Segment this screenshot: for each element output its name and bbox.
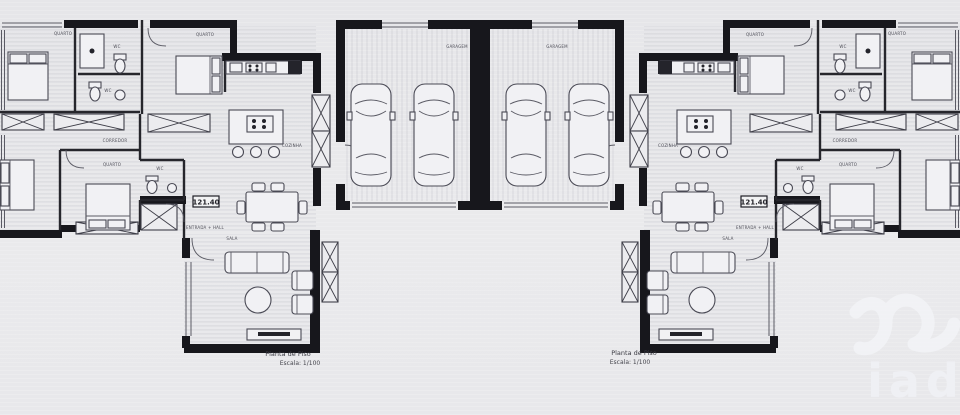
right-entrance-label: ENTRADA + HALL bbox=[736, 225, 775, 230]
right-caption-scale: Escala: 1/100 bbox=[610, 359, 651, 366]
right-wc2-label: WC bbox=[848, 88, 855, 93]
left-wc2-label: WC bbox=[104, 88, 111, 93]
left-bedroom2-label: QUARTO bbox=[196, 32, 214, 37]
left-caption-title: Planta de Piso bbox=[265, 350, 311, 358]
right-caption-title: Planta de Piso bbox=[611, 349, 657, 357]
left-kitchen-label: COZINHA bbox=[282, 143, 302, 148]
right-garage-label: GARAGEM bbox=[546, 44, 568, 49]
right-corridor-label: CORREDOR bbox=[833, 138, 858, 143]
left-entrance-label: ENTRADA + HALL bbox=[186, 225, 225, 230]
floor-plan-image: iad QUARTO QUARTO WC WC CORREDOR QUARTO … bbox=[0, 0, 960, 415]
left-bedroom3-label: QUARTO bbox=[103, 162, 121, 167]
left-unit-plan bbox=[0, 20, 338, 353]
left-garage-label: GARAGEM bbox=[446, 44, 468, 49]
right-living-label: SALA bbox=[722, 236, 733, 241]
right-kitchen-label: COZINHA bbox=[658, 143, 678, 148]
left-total-area: 121.40 bbox=[192, 199, 219, 207]
left-wc1-label: WC bbox=[113, 44, 120, 49]
left-caption-scale: Escala: 1/100 bbox=[280, 360, 321, 367]
right-bedroom3-label: QUARTO bbox=[839, 162, 857, 167]
right-wc1-label: WC bbox=[839, 44, 846, 49]
left-living-label: SALA bbox=[226, 236, 237, 241]
right-bedroom1-label: QUARTO bbox=[888, 31, 906, 36]
watermark: iad bbox=[856, 300, 960, 408]
right-total-area: 121.40 bbox=[740, 199, 767, 207]
floor-plan-svg: iad QUARTO QUARTO WC WC CORREDOR QUARTO … bbox=[0, 0, 960, 415]
left-bedroom1-label: QUARTO bbox=[54, 31, 72, 36]
iad-logo-text: iad bbox=[867, 354, 960, 408]
iad-logo-symbol bbox=[856, 300, 954, 349]
right-wc3-label: WC bbox=[796, 166, 803, 171]
left-wc3-label: WC bbox=[156, 166, 163, 171]
left-corridor-label: CORREDOR bbox=[103, 138, 128, 143]
right-bedroom2-label: QUARTO bbox=[746, 32, 764, 37]
